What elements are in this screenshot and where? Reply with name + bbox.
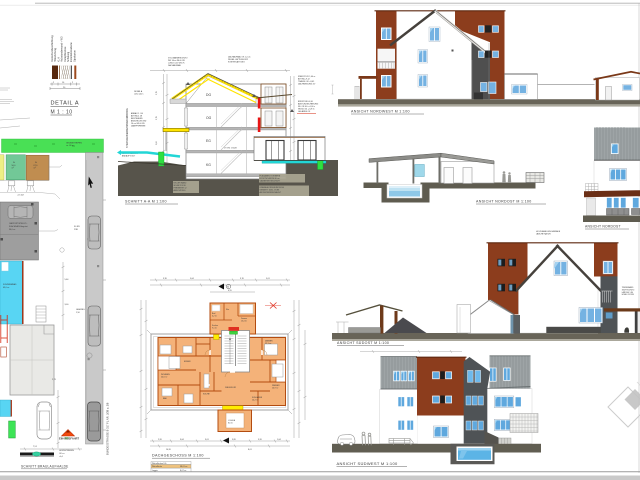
svg-text:8,6 m²: 8,6 m² [228,421,233,424]
svg-text:A: A [227,286,229,289]
svg-text:2,76: 2,76 [156,116,158,120]
svg-text:ANKAUF B 317: ANKAUF B 317 [122,155,135,158]
svg-text:OG: OG [206,116,212,120]
svg-text:7,51: 7,51 [33,446,38,448]
svg-text:FLACHDACH begrünt: FLACHDACH begrünt [9,225,28,228]
svg-text:6,2 m²: 6,2 m² [212,315,217,318]
svg-text:DAMPFSPERRE: DAMPFSPERRE [131,125,146,128]
svg-text:ABDICHTUNG: ABDICHTUNG [174,189,186,192]
svg-text:ANSICHT NORDOST M 1:100: ANSICHT NORDOST M 1:100 [476,200,532,204]
svg-text:Wohnfläche: Wohnfläche [152,466,162,468]
svg-text:2,5 tief: 2,5 tief [18,194,25,197]
svg-text:ANSICHT SÜDWEST M 1:100: ANSICHT SÜDWEST M 1:100 [337,461,398,466]
svg-text:CARPORT/STELLPL.: CARPORT/STELLPL. [9,222,28,225]
svg-text:8,07 m²: 8,07 m² [180,469,187,472]
svg-text:m²: m² [12,167,15,170]
svg-text:SAUBERKEITSSCHICHT: SAUBERKEITSSCHICHT [260,180,281,183]
svg-text:DACHGESCHOSS M 1:100: DACHGESCHOSS M 1:100 [152,454,204,458]
svg-text:2,26: 2,26 [158,439,162,441]
svg-text:HÖHE OK FFB: HÖHE OK FFB [622,293,635,296]
svg-text:10,9 m²: 10,9 m² [272,386,279,389]
svg-text:8,01: 8,01 [248,449,252,451]
svg-text:3,39: 3,39 [163,278,167,280]
svg-text:ANSICHT NORDWEST M 1:100: ANSICHT NORDWEST M 1:100 [351,110,410,114]
svg-text:ANSICHT SÜDOST M 1:100: ANSICHT SÜDOST M 1:100 [337,341,389,345]
svg-text:BUNDESSTRASSE B 317 FL.NR. 2/: BUNDESSTRASSE B 317 FL.NR. 2/38 u. 2/6 [106,402,110,455]
svg-text:5,64: 5,64 [65,279,70,281]
svg-text:13,4 m²: 13,4 m² [241,320,247,323]
svg-text:2/38: 2/38 [74,229,78,231]
svg-text:4,55: 4,55 [228,290,232,292]
svg-text:DG: DG [206,93,211,97]
svg-text:LÄRCHE NATUR: LÄRCHE NATUR [536,233,551,236]
svg-text:ca. 80 m: ca. 80 m [66,145,74,147]
svg-text:BAD: BAD [163,397,168,400]
svg-text:SCHNITT BRAULAUFHALDE: SCHNITT BRAULAUFHALDE [21,465,69,469]
svg-text:ESSEN: ESSEN [184,361,191,363]
svg-text:2,76: 2,76 [156,91,158,95]
svg-text:24,6 m²: 24,6 m² [161,376,168,379]
svg-text:2,62: 2,62 [156,141,158,145]
svg-text:9,1 m²: 9,1 m² [212,327,217,330]
svg-text:+0,4: +0,4 [59,456,63,458]
svg-text:17 STG 17,6/28: 17 STG 17,6/28 [224,148,237,150]
svg-text:EIN-/AUSFAHRT: EIN-/AUSFAHRT [59,437,79,441]
svg-text:OK ca.: OK ca. [59,453,65,455]
svg-text:98,01 m²: 98,01 m² [180,465,188,468]
svg-text:EG: EG [206,139,211,143]
svg-text:siehe oben: siehe oben [134,94,143,96]
svg-text:3,26: 3,26 [258,439,262,441]
svg-text:3,00: 3,00 [65,304,70,306]
svg-text:SCHWIMMBAD: SCHWIMMBAD [3,283,17,286]
svg-text:DETAIL A: DETAIL A [51,101,80,107]
svg-text:AN REVISIONSSCHACHT: AN REVISIONSSCHACHT [260,191,282,194]
svg-text:3,01: 3,01 [205,439,209,441]
svg-text:5,64: 5,64 [190,278,194,280]
svg-text:3,76: 3,76 [240,278,244,280]
svg-text:36,0 m²: 36,0 m² [9,228,16,231]
svg-text:14,26: 14,26 [166,449,171,451]
svg-text:GEHWEG: GEHWEG [76,309,85,311]
svg-text:FL.NR.: FL.NR. [74,226,80,228]
svg-text:1,50: 1,50 [76,312,80,314]
svg-text:GELÄNDE OK: GELÄNDE OK [298,110,311,113]
svg-text:3,89: 3,89 [232,439,236,441]
svg-text:DIELE/FLUR: DIELE/FLUR [225,387,237,389]
svg-text:Flur: Flur [226,309,229,311]
svg-text:12,1 m²: 12,1 m² [265,342,272,345]
svg-text:KÜCHE: KÜCHE [203,393,210,396]
svg-text:3,64: 3,64 [180,439,184,441]
svg-text:63,0 m²: 63,0 m² [3,286,10,289]
svg-text:KG: KG [206,163,211,167]
svg-text:SCHNITT A-A M 1:100: SCHNITT A-A M 1:100 [125,200,167,204]
svg-text:m²: m² [34,167,37,170]
svg-text:GRÜNSTREIFEN: GRÜNSTREIFEN [59,449,75,452]
svg-text:2,75: 2,75 [52,379,57,381]
svg-text:14,2 m²: 14,2 m² [252,398,259,401]
svg-text:1,64: 1,64 [277,439,281,441]
svg-text:Loggia: Loggia [152,470,159,472]
svg-text:M 1 : 10: M 1 : 10 [51,109,73,115]
svg-text:DACHAUFBAU: DACHAUFBAU [168,64,182,67]
svg-text:STRASSENVERKEHRSRAUMPROFIL: STRASSENVERKEHRSRAUMPROFIL [126,107,129,148]
svg-text:Gipskarton: Gipskarton [73,50,76,62]
svg-text:ANSICHT NORDOST: ANSICHT NORDOST [585,225,621,229]
svg-text:DACHNEIGUNG 25°: DACHNEIGUNG 25° [298,83,316,86]
svg-text:5,01: 5,01 [266,278,270,280]
svg-text:KONTERLATTUNG: KONTERLATTUNG [228,61,245,64]
